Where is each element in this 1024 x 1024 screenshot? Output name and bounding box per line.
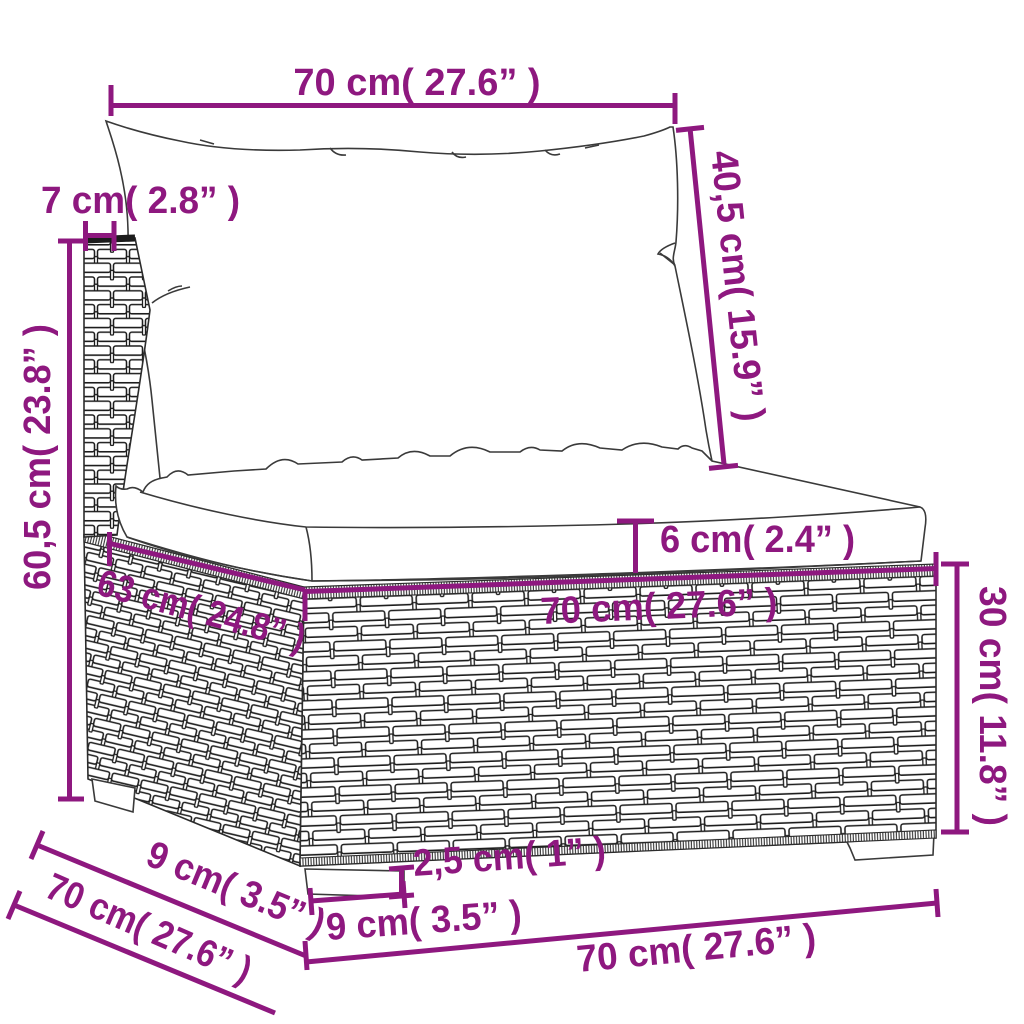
svg-text:60,5 cm( 23.8” ): 60,5 cm( 23.8” )	[17, 324, 59, 590]
svg-text:7 cm( 2.8” ): 7 cm( 2.8” )	[41, 180, 240, 222]
svg-text:6 cm( 2.4” ): 6 cm( 2.4” )	[660, 519, 855, 561]
svg-text:70 cm( 27.6” ): 70 cm( 27.6” )	[293, 62, 540, 104]
svg-text:30 cm( 11.8” ): 30 cm( 11.8” )	[971, 586, 1013, 826]
